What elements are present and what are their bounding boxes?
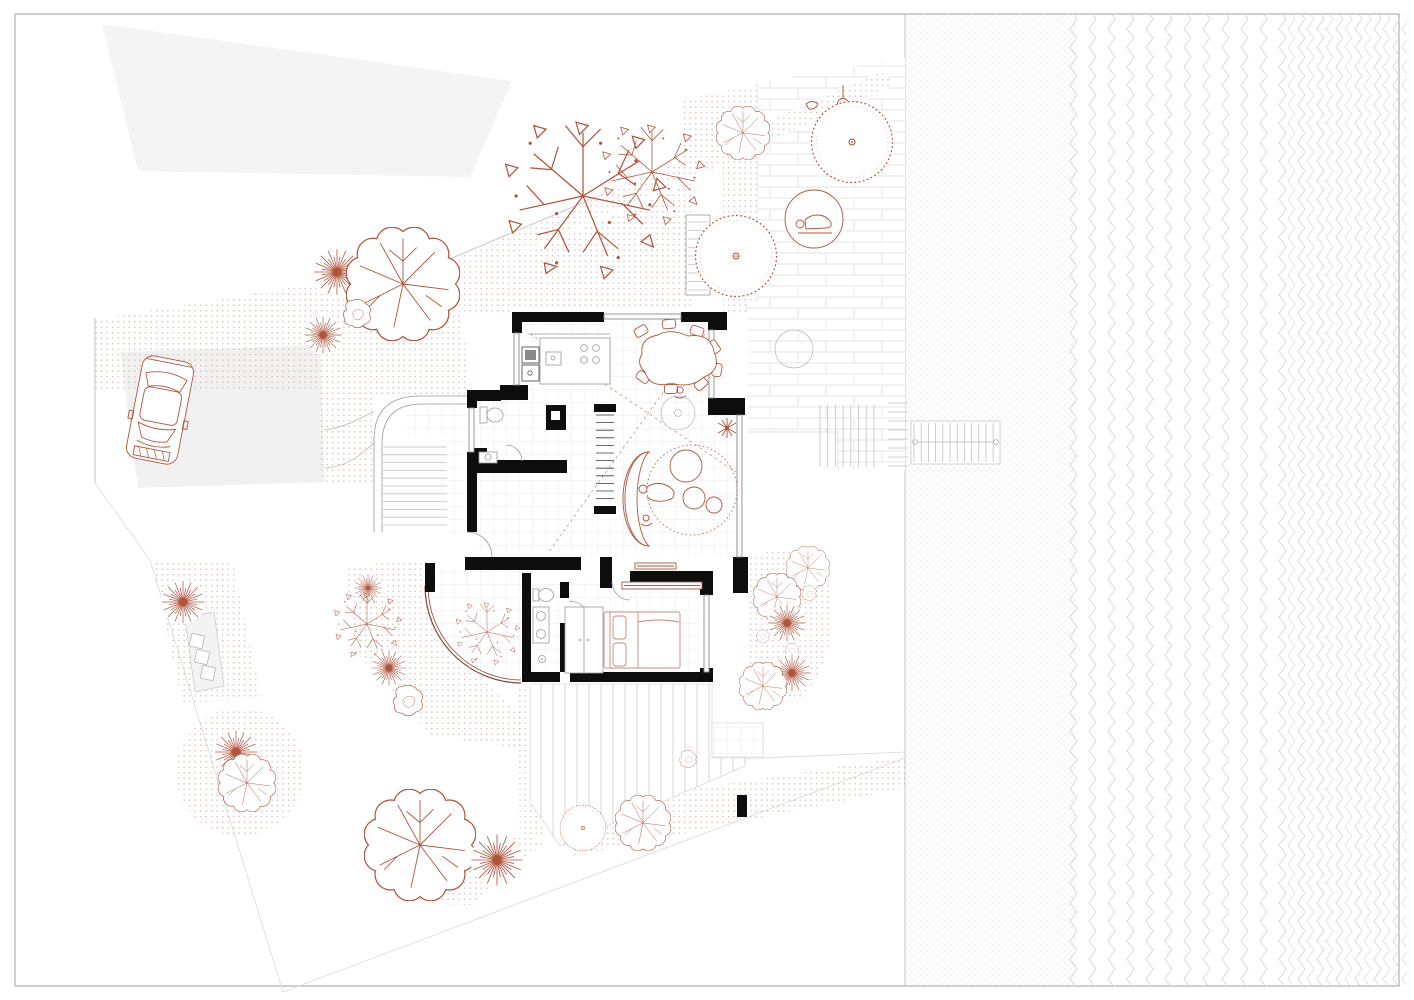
pouf — [706, 497, 722, 513]
entry-upper-landing — [404, 406, 448, 436]
tree-dandelion — [470, 833, 523, 886]
tree-lobed — [716, 106, 770, 160]
stepping-stone — [200, 665, 215, 680]
toilet-bowl — [487, 408, 503, 422]
entry-landing-paving — [448, 404, 467, 534]
tree-dandelion — [371, 650, 408, 687]
tree-formal — [696, 216, 777, 297]
island-sink — [546, 352, 561, 365]
site-plan-page: Ground floor site plan — house with gard… — [0, 0, 1414, 1000]
appliance — [522, 365, 539, 381]
wc-window — [469, 408, 474, 452]
deck-pier — [737, 795, 747, 817]
tree-lobed — [218, 754, 276, 812]
sunbather-on-lounger — [785, 190, 843, 248]
footbridge — [911, 421, 1000, 464]
neighbor-building — [102, 24, 512, 177]
tree-dandelion — [304, 316, 343, 355]
tree-dandelion — [161, 580, 205, 624]
tree-formal — [560, 805, 606, 851]
tree-lobed — [615, 795, 671, 851]
deck-paving-grid — [712, 723, 763, 757]
bedroom-east-glazing — [704, 595, 709, 672]
bed — [604, 612, 680, 668]
courtyard-gate-pier — [425, 563, 435, 592]
tree-lobed — [364, 789, 476, 901]
entry-stair — [374, 394, 469, 535]
pillow-2 — [613, 643, 626, 666]
tree-dandelion — [353, 573, 382, 602]
toilet-tank — [480, 407, 487, 423]
vanity — [533, 607, 549, 643]
stepping-stone — [189, 633, 204, 648]
toilet-bowl — [539, 589, 554, 602]
dining-table — [640, 332, 717, 385]
ground-floor-site-plan: Ground floor site plan — house with gard… — [0, 0, 1414, 1000]
bank-hatch-texture — [906, 15, 1076, 985]
tree-formal — [812, 102, 893, 183]
water-zigzag-dense — [1279, 15, 1407, 985]
living-east-glazing — [737, 415, 742, 557]
coffee-table — [670, 450, 702, 482]
tree-dandelion — [768, 604, 807, 643]
north-window — [604, 314, 681, 319]
pillow-1 — [613, 616, 626, 639]
tree-lobed — [739, 662, 787, 710]
kitchen-west-window — [514, 333, 519, 385]
stepping-stone — [194, 649, 209, 664]
waterfront-texture — [906, 15, 1407, 985]
side-table — [683, 487, 705, 509]
